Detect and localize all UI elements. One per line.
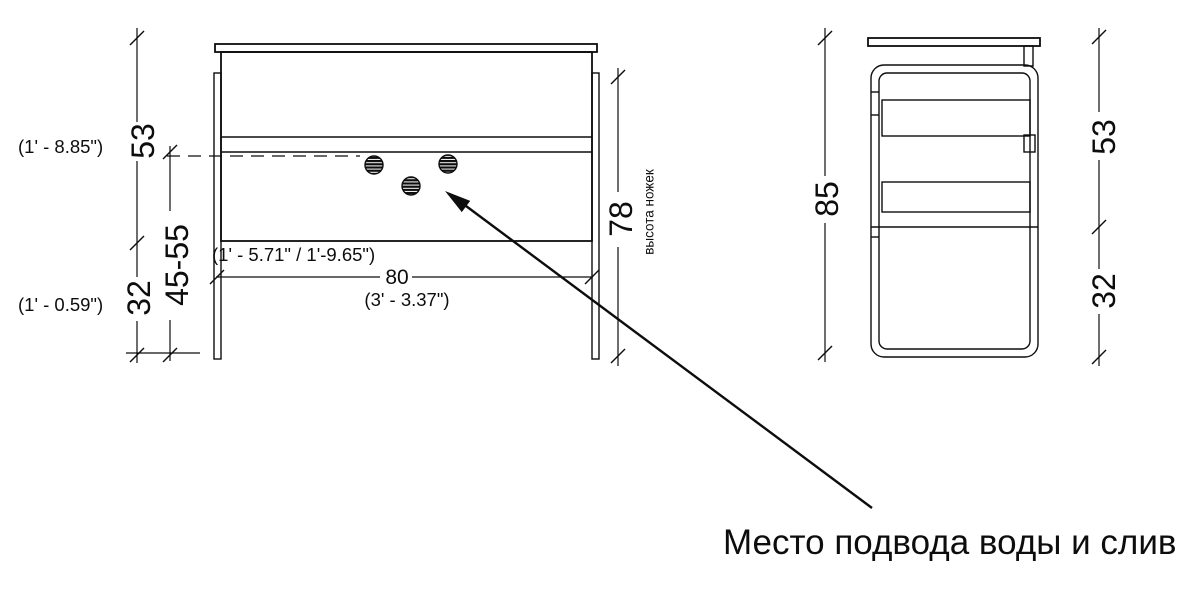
dim-32-label: 32 — [121, 280, 157, 316]
drain-hole-center — [402, 177, 420, 195]
dim-85-label: 85 — [809, 181, 845, 217]
dim-78-label: 78 — [603, 201, 639, 237]
dim-53-imperial-label: (1' - 8.85") — [18, 136, 103, 157]
dim-80-label: 80 — [385, 266, 408, 289]
water-supply-hole-right — [439, 155, 457, 173]
dim-side-32-label: 32 — [1086, 273, 1122, 309]
vanity-dimension-drawing: (1' - 8.85") 53 45-55 32 (1' - 0.59") (1… — [0, 0, 1203, 586]
callout-label: Место подвода воды и слив — [723, 523, 1176, 562]
dim-45-55-label: 45-55 — [159, 224, 195, 306]
dim-side-53-label: 53 — [1086, 119, 1122, 155]
dim-80-imperial-label: (3' - 3.37") — [364, 289, 449, 310]
technical-drawing-page: (1' - 8.85") 53 45-55 32 (1' - 0.59") (1… — [0, 0, 1203, 586]
dim-45-55-imperial-label: (1' - 5.71" / 1'-9.65") — [212, 244, 375, 265]
water-supply-hole-left — [365, 156, 383, 174]
dim-32-imperial-label: (1' - 0.59") — [18, 294, 103, 315]
dim-78-note-label: высота ножек — [642, 169, 657, 255]
dim-53-label: 53 — [125, 123, 161, 159]
